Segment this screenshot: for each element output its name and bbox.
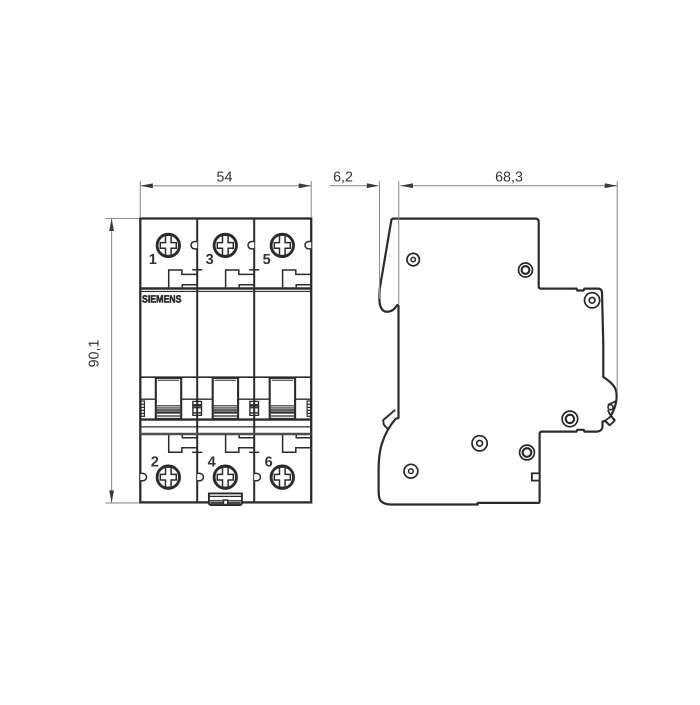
svg-text:90,1: 90,1: [87, 340, 103, 368]
svg-text:1: 1: [149, 252, 157, 268]
svg-text:SIEMENS: SIEMENS: [142, 295, 182, 306]
svg-text:4: 4: [208, 454, 216, 470]
svg-text:5: 5: [263, 252, 271, 268]
svg-text:68,3: 68,3: [495, 169, 523, 185]
svg-text:6,2: 6,2: [333, 169, 353, 185]
svg-text:3: 3: [206, 252, 214, 268]
svg-text:2: 2: [151, 454, 159, 470]
svg-text:6: 6: [265, 454, 273, 470]
svg-text:54: 54: [217, 169, 233, 185]
